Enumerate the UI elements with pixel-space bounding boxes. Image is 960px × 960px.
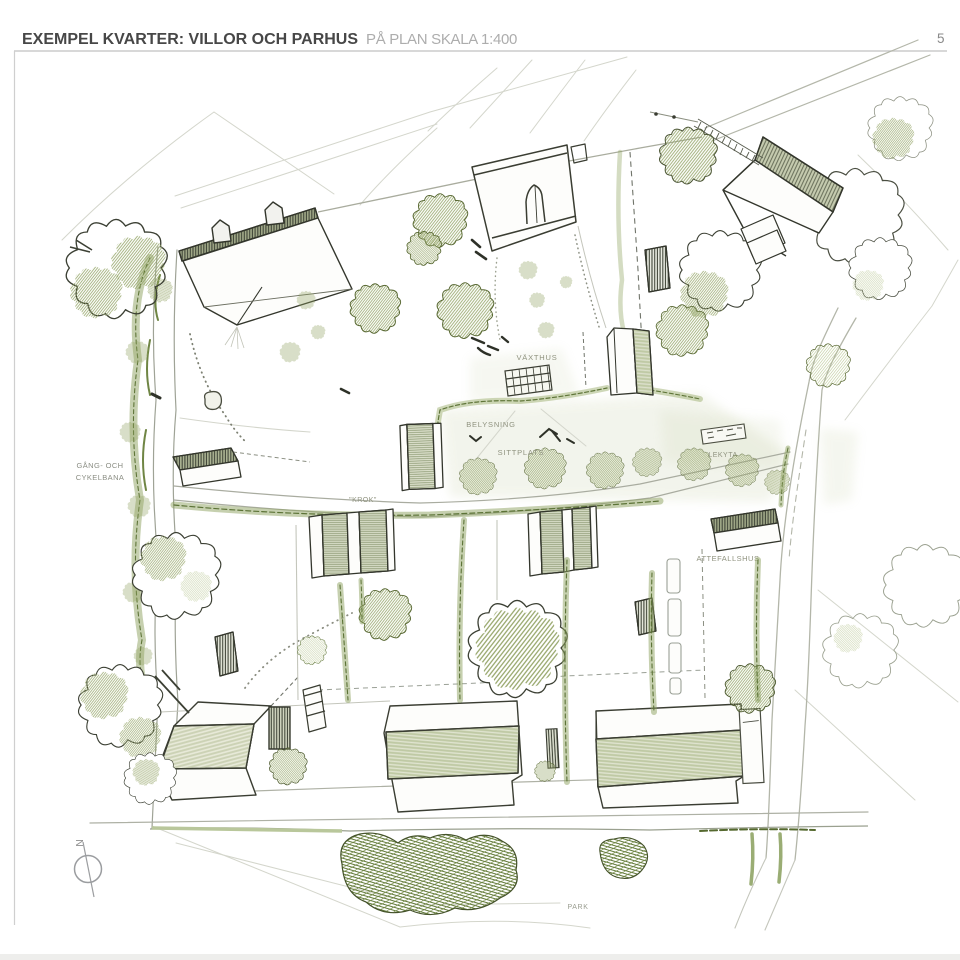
svg-text:"KROK": "KROK" (349, 497, 377, 504)
svg-text:GÅNG- OCH: GÅNG- OCH (77, 461, 124, 470)
svg-text:N: N (74, 839, 86, 847)
svg-text:PÅ PLAN SKALA 1:400: PÅ PLAN SKALA 1:400 (366, 31, 517, 48)
svg-text:EXEMPEL KVARTER: VILLOR OCH PA: EXEMPEL KVARTER: VILLOR OCH PARHUS (22, 31, 358, 48)
svg-text:PARK: PARK (568, 904, 589, 911)
svg-text:5: 5 (937, 31, 945, 46)
svg-text:ATTEFALLSHUS: ATTEFALLSHUS (697, 554, 760, 563)
svg-text:VÄXTHUS: VÄXTHUS (516, 353, 557, 362)
svg-text:CYKELBANA: CYKELBANA (76, 473, 125, 482)
svg-text:SITTPLATS: SITTPLATS (498, 448, 545, 457)
svg-text:BELYSNING: BELYSNING (466, 420, 516, 429)
